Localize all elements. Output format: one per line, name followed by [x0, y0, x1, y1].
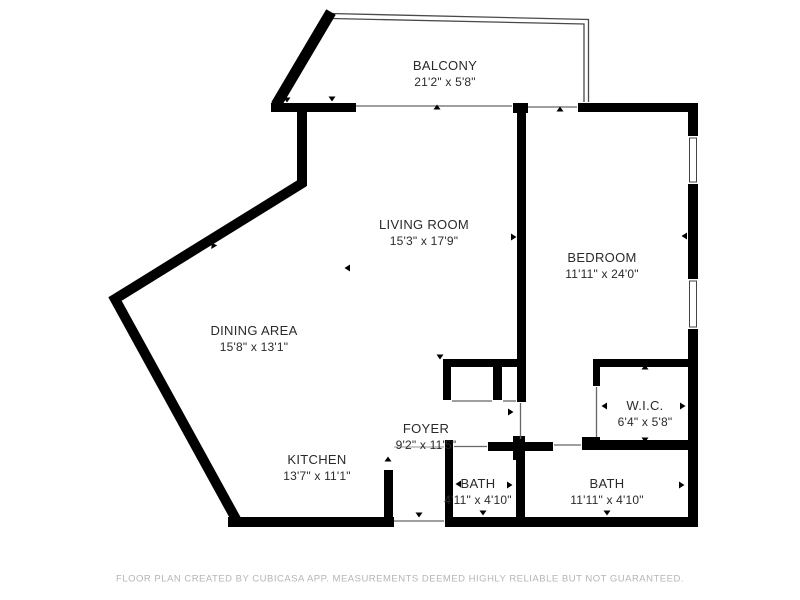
wall-wic-top [593, 359, 688, 367]
wall-wic-bath-bottom [582, 440, 698, 450]
room-dims: 9'2" x 11'5" [396, 437, 457, 453]
room-name: BATH [444, 476, 512, 492]
exterior-diagonal-walls [115, 12, 331, 521]
wall-bottom-right [445, 517, 698, 527]
room-label-dining-area: DINING AREA 15'8" x 13'1" [210, 323, 297, 355]
room-name: LIVING ROOM [379, 217, 469, 233]
door-openings [356, 106, 597, 521]
room-dims: 15'3" x 17'9" [379, 233, 469, 249]
room-dims: 11'11" x 4'10" [570, 492, 644, 508]
room-dims: 15'8" x 13'1" [210, 339, 297, 355]
wall-bedroom-top [578, 103, 698, 112]
wall-bottom-left [228, 517, 394, 527]
wall-balcony-diagonal [276, 12, 331, 105]
room-name: BATH [570, 476, 644, 492]
wall-kitchen-entry-stub [384, 470, 393, 517]
room-label-wic: W.I.C. 6'4" x 5'8" [618, 398, 673, 430]
room-label-living-room: LIVING ROOM 15'3" x 17'9" [379, 217, 469, 249]
room-name: DINING AREA [210, 323, 297, 339]
room-label-bedroom: BEDROOM 11'11" x 24'0" [565, 250, 639, 282]
room-label-bath-1: BATH 4'11" x 4'10" [444, 476, 512, 508]
room-label-kitchen: KITCHEN 13'7" x 11'1" [283, 452, 351, 484]
room-label-bath-2: BATH 11'11" x 4'10" [570, 476, 644, 508]
footer-disclaimer: FLOOR PLAN CREATED BY CUBICASA APP. MEAS… [116, 574, 684, 585]
room-label-foyer: FOYER 9'2" x 11'5" [396, 421, 457, 453]
room-dims: 21'2" x 5'8" [413, 74, 477, 90]
interior-walls [443, 112, 698, 517]
room-dims: 6'4" x 5'8" [618, 414, 673, 430]
wall-wic-left-stub [593, 359, 600, 386]
room-dims: 13'7" x 11'1" [283, 468, 351, 484]
wall-top-divider-stub [513, 103, 528, 113]
room-name: W.I.C. [618, 398, 673, 414]
floor-plan-canvas [0, 0, 800, 600]
floor-plan-page: BALCONY 21'2" x 5'8" LIVING ROOM 15'3" x… [0, 0, 800, 600]
wall-top-left-segment [271, 103, 356, 112]
room-label-balcony: BALCONY 21'2" x 5'8" [413, 58, 477, 90]
wall-closet-top [443, 359, 518, 367]
room-name: KITCHEN [283, 452, 351, 468]
wall-living-bedroom-divider [517, 112, 526, 402]
room-dims: 11'11" x 24'0" [565, 266, 639, 282]
wall-closet-left-stub [443, 359, 451, 400]
tick-markers [201, 97, 687, 518]
wall-closet-middle-stub [493, 359, 502, 400]
wall-bath-divider [516, 450, 525, 517]
room-name: BEDROOM [565, 250, 639, 266]
room-name: FOYER [396, 421, 457, 437]
room-name: BALCONY [413, 58, 477, 74]
wall-livingroom-west [297, 110, 307, 186]
room-dims: 4'11" x 4'10" [444, 492, 512, 508]
